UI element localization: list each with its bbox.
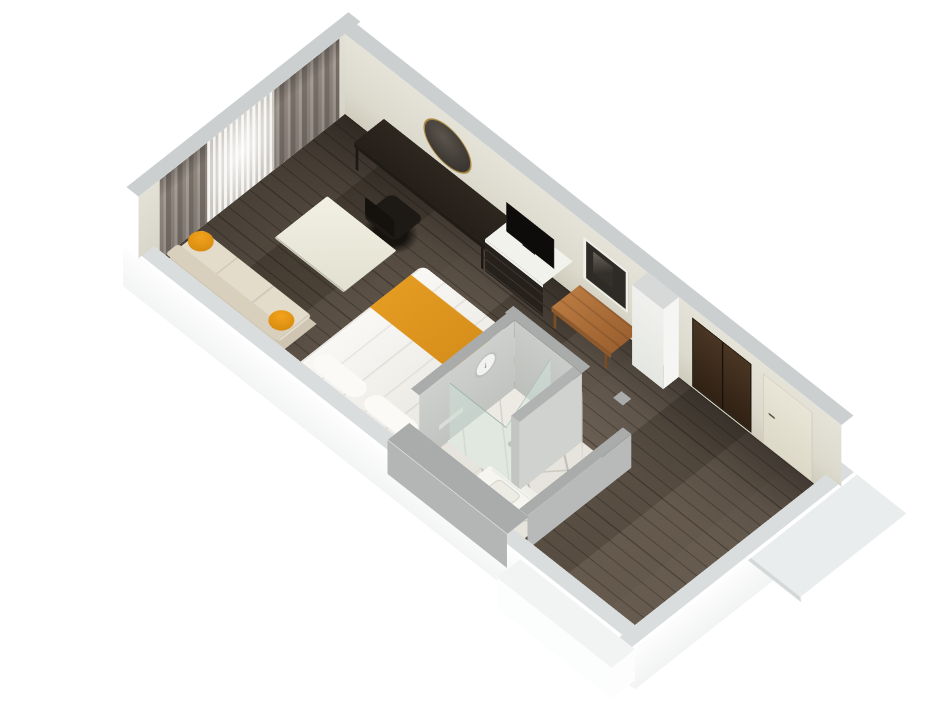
- desk-leg-left: [356, 148, 359, 171]
- shower-head-icon: ↓: [477, 349, 495, 379]
- wardrobe-seam: [722, 342, 723, 410]
- bench-leg-right: [605, 353, 608, 369]
- shower-head-arrow: ↓: [483, 358, 488, 371]
- entry-door-handle: [769, 413, 775, 420]
- column-side-face: [663, 297, 679, 389]
- art-print: [593, 252, 613, 289]
- desk-leg-right: [481, 247, 484, 270]
- bath-partition-front: [511, 416, 519, 492]
- bench-leg-left: [554, 313, 557, 329]
- floorplan-render: ↓: [0, 0, 940, 705]
